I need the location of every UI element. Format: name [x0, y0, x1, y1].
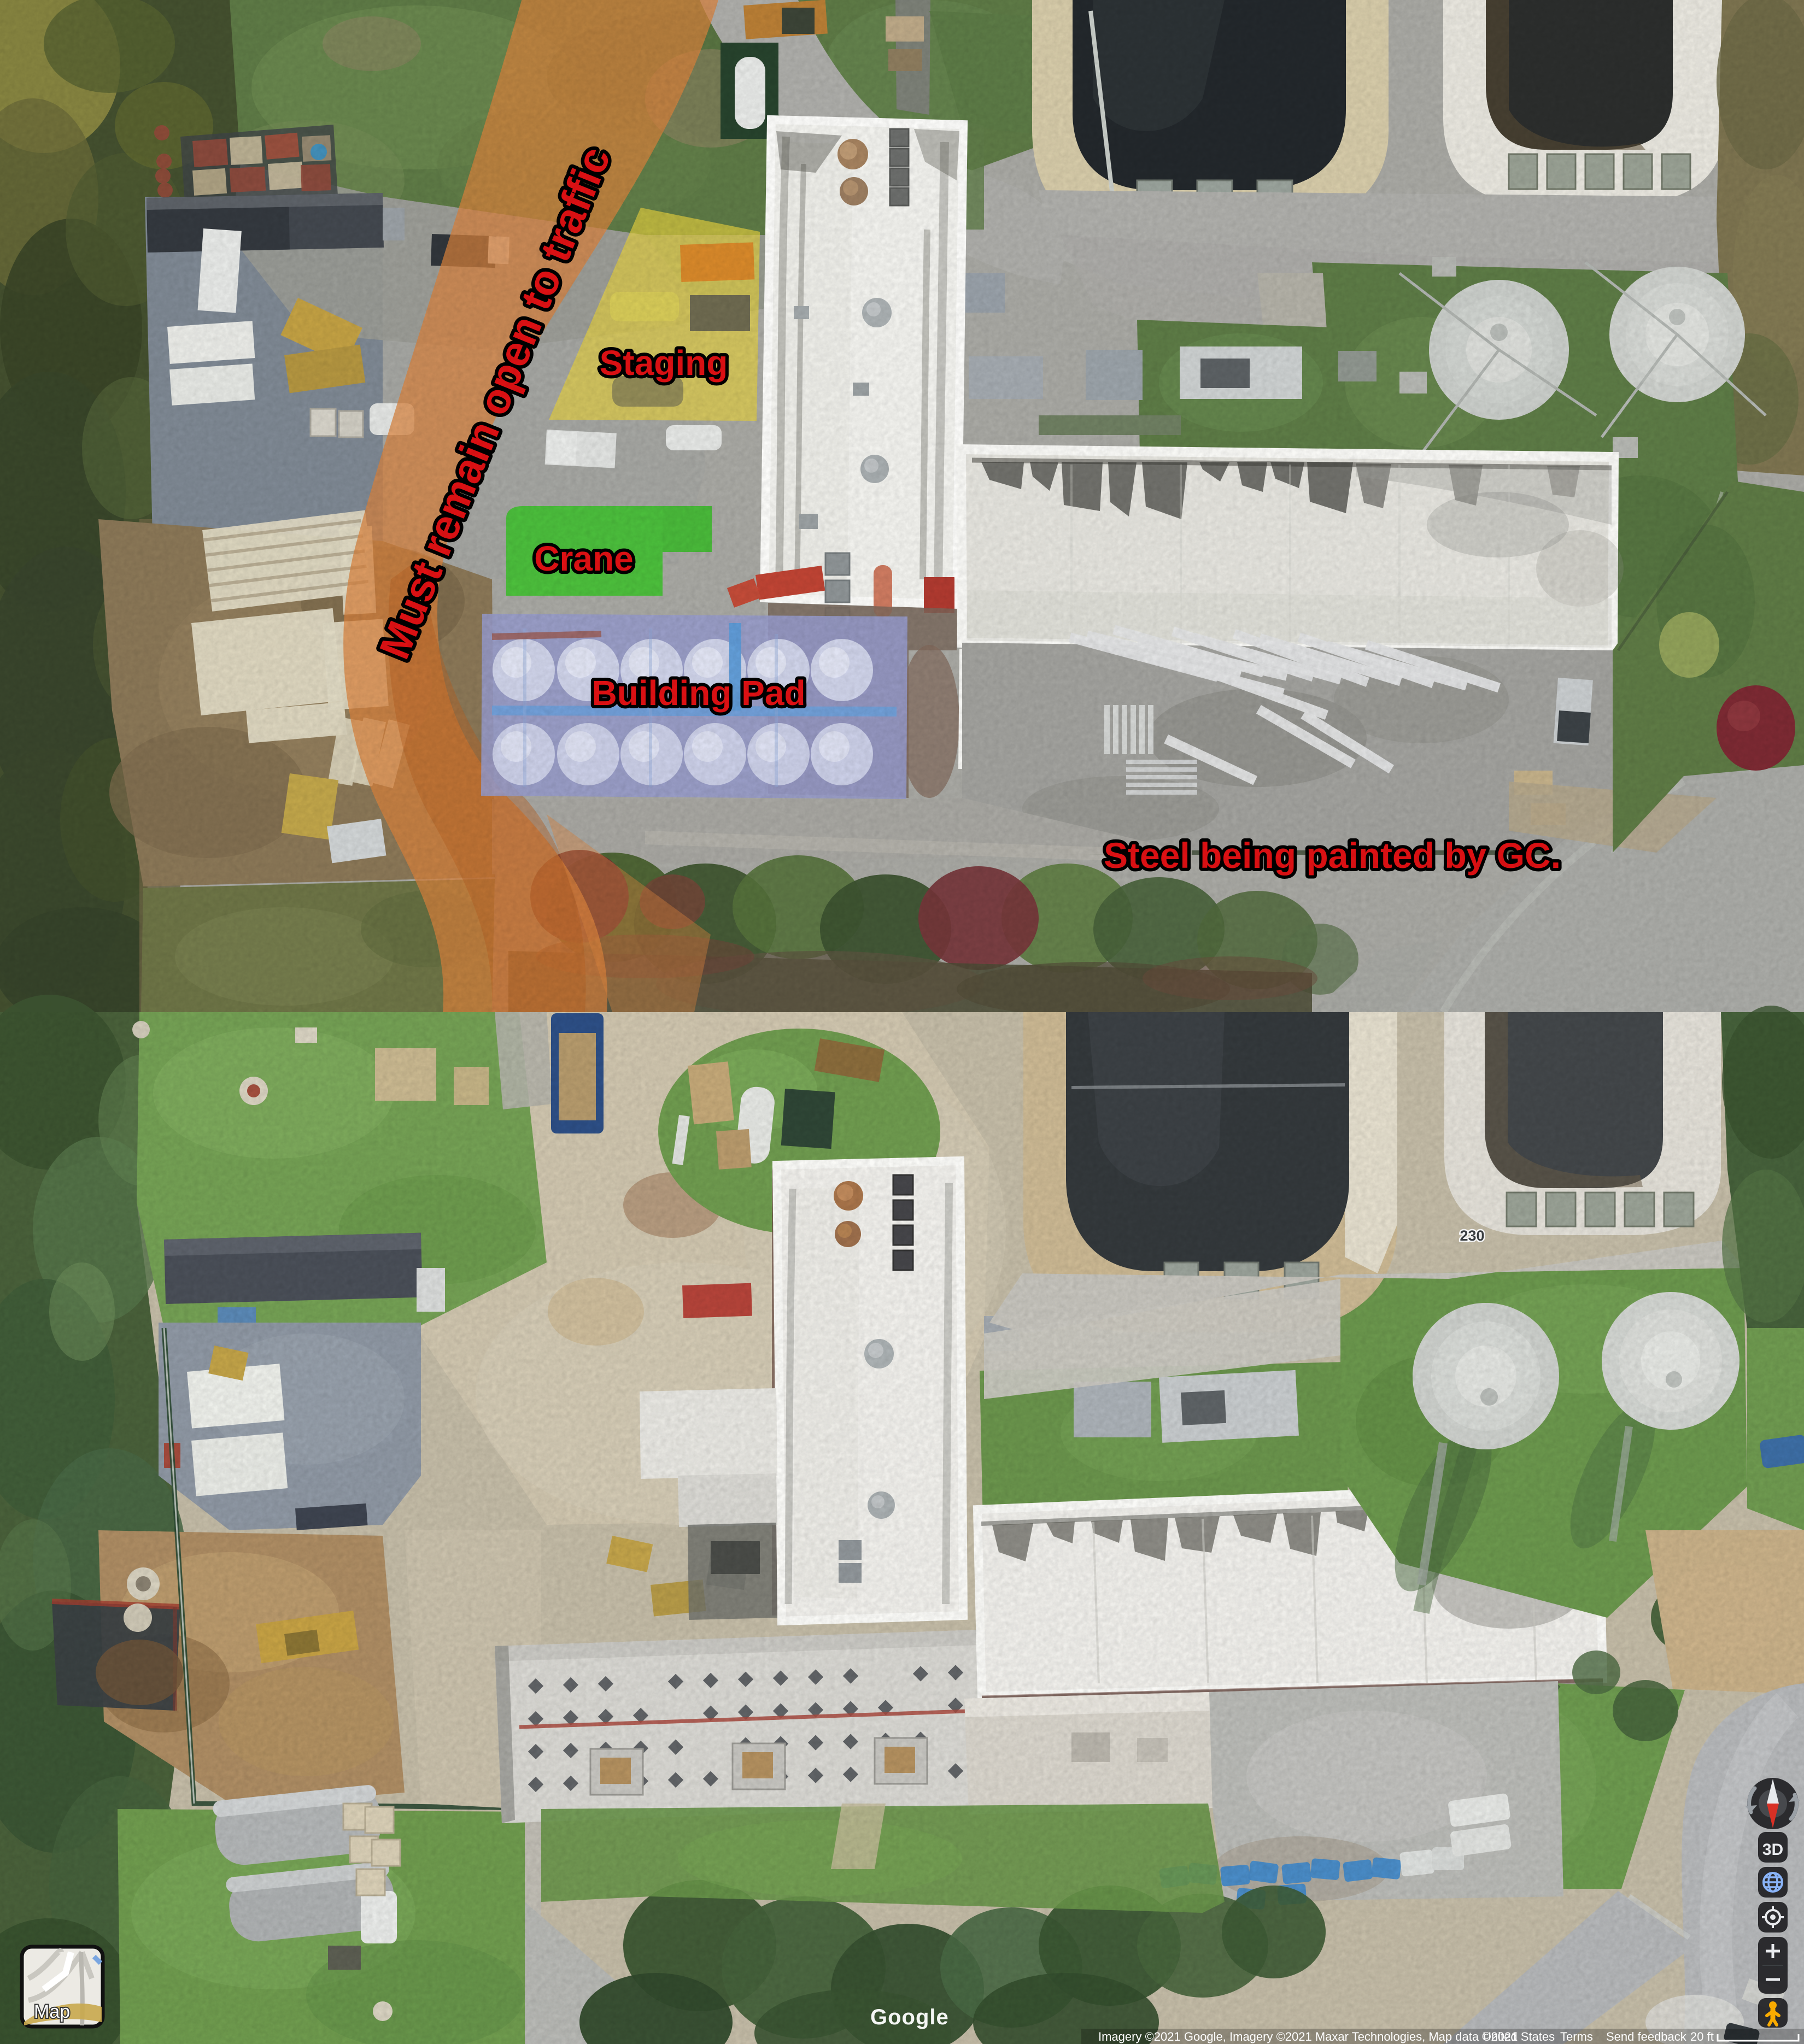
svg-text:Imagery ©2021 Google, Imagery: Imagery ©2021 Google, Imagery ©2021 Maxa…: [1098, 2030, 1518, 2043]
svg-text:Terms: Terms: [1560, 2030, 1593, 2043]
svg-text:Google: Google: [870, 2005, 949, 2029]
svg-text:3D: 3D: [1762, 1841, 1783, 1859]
svg-text:Map: Map: [34, 2001, 70, 2022]
svg-text:20 ft: 20 ft: [1690, 2030, 1714, 2043]
svg-text:Send feedback: Send feedback: [1606, 2030, 1687, 2043]
svg-text:United States: United States: [1483, 2030, 1555, 2043]
